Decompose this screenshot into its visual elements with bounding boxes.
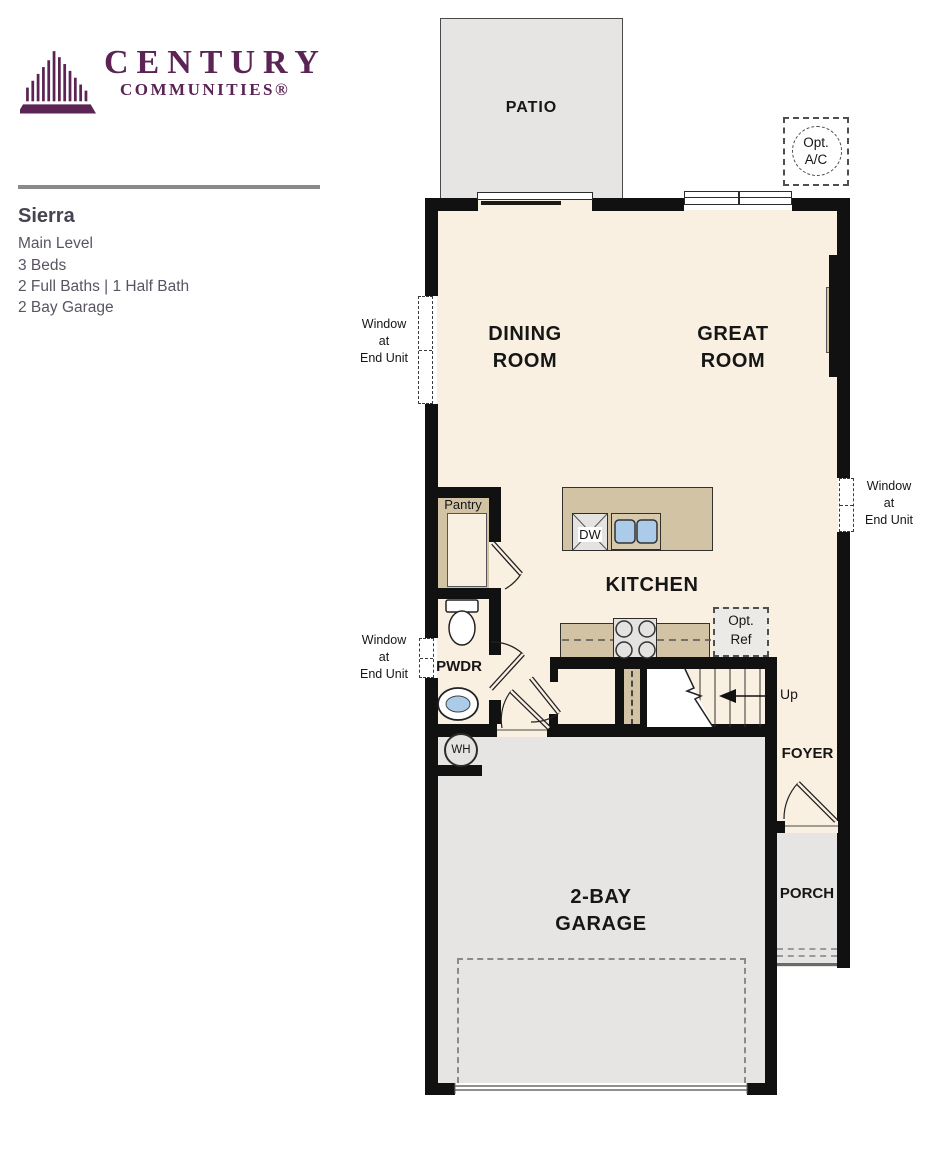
floorplan-page: { "brand": { "name_line1": "CENTURY", "n… xyxy=(0,0,943,1150)
wall-segment xyxy=(592,198,684,211)
dishwasher-label: DW xyxy=(572,527,608,542)
great-room-window xyxy=(684,191,792,205)
opt-ac-line1: Opt. xyxy=(783,134,849,151)
century-communities-logo-icon xyxy=(20,44,96,116)
century-communities-logo: CENTURY COMMUNITIES® xyxy=(20,44,340,124)
window-note-line1: Window xyxy=(350,632,418,649)
cooktop-box xyxy=(613,618,657,660)
window-note-line2: at xyxy=(350,649,418,666)
end-unit-window-dining xyxy=(418,296,433,404)
entry-wall xyxy=(765,821,785,833)
powder-door-opening xyxy=(489,655,501,700)
wall-segment xyxy=(837,377,850,478)
opt-ac-line2: A/C xyxy=(783,151,849,168)
wall-segment xyxy=(425,678,438,1095)
pantry-label: Pantry xyxy=(437,497,489,512)
garage-door-dashed-outline xyxy=(457,958,746,1083)
kitchen-sink-counter xyxy=(611,513,661,550)
great-line2: ROOM xyxy=(663,348,803,375)
wall-segment xyxy=(425,404,438,638)
closet-wall xyxy=(640,669,647,727)
kitchen-label: KITCHEN xyxy=(582,572,722,599)
entry-wall xyxy=(838,821,850,833)
dw-text: DW xyxy=(578,527,602,542)
plan-baths: 2 Full Baths | 1 Half Bath xyxy=(18,278,189,296)
porch-step-line xyxy=(777,955,837,957)
window-note-dining: Window at End Unit xyxy=(350,316,418,367)
closet-wall xyxy=(615,669,624,727)
fireplace-chase-wall xyxy=(829,255,850,377)
great-room-label: GREAT ROOM xyxy=(663,321,803,375)
water-heater-label: WH xyxy=(444,733,478,767)
opt-ref-line1: Opt. xyxy=(713,611,769,630)
dining-room-label: DINING ROOM xyxy=(455,321,595,375)
window-note-line3: End Unit xyxy=(350,666,418,683)
pantry-wall xyxy=(425,588,501,599)
porch-step-edge xyxy=(777,963,837,966)
garage-side-wall xyxy=(765,669,777,1083)
brand-subname: COMMUNITIES® xyxy=(120,80,327,100)
sliding-door-panel-inner xyxy=(481,201,561,205)
garage-front-wall xyxy=(747,1083,777,1095)
porch-label: PORCH xyxy=(777,885,837,902)
wall-jamb xyxy=(549,714,558,727)
pantry-wall xyxy=(489,487,501,542)
pantry-floor xyxy=(447,513,487,587)
powder-wall xyxy=(489,700,501,726)
powder-label: PWDR xyxy=(430,658,488,675)
powder-wall xyxy=(489,599,501,655)
wall-jamb xyxy=(550,657,558,682)
window-note-line2: at xyxy=(350,333,418,350)
opt-ref-line2: Ref xyxy=(713,630,769,649)
optional-ac-label: Opt. A/C xyxy=(783,134,849,168)
dining-line2: ROOM xyxy=(455,348,595,375)
garage-label: 2-BAY GARAGE xyxy=(511,884,691,938)
window-note-great: Window at End Unit xyxy=(855,478,923,529)
window-note-line2: at xyxy=(855,495,923,512)
great-line1: GREAT xyxy=(663,321,803,348)
front-door-opening xyxy=(785,821,838,833)
dining-line1: DINING xyxy=(455,321,595,348)
foyer-area xyxy=(777,729,838,822)
window-note-line1: Window xyxy=(855,478,923,495)
garage-entry-opening xyxy=(497,724,547,737)
garage-line2: GARAGE xyxy=(511,911,691,938)
kitchen-wall xyxy=(550,657,777,669)
up-label: Up xyxy=(780,686,810,702)
plan-level: Main Level xyxy=(18,235,93,253)
window-note-powder: Window at End Unit xyxy=(350,632,418,683)
patio-label: PATIO xyxy=(440,99,623,117)
window-note-line3: End Unit xyxy=(855,512,923,529)
window-note-line3: End Unit xyxy=(350,350,418,367)
window-note-line1: Window xyxy=(350,316,418,333)
garage-front-wall xyxy=(425,1083,455,1095)
closet-dashed-line xyxy=(631,671,633,725)
wall-segment xyxy=(425,198,438,296)
brand-name: CENTURY xyxy=(104,44,327,82)
wall-segment xyxy=(837,532,850,968)
pantry-door-opening xyxy=(489,543,501,588)
divider xyxy=(18,185,320,189)
plan-name: Sierra xyxy=(18,205,75,228)
wall-segment xyxy=(837,198,850,255)
garage-wall xyxy=(547,724,777,737)
end-unit-window-great xyxy=(839,478,854,532)
foyer-label: FOYER xyxy=(777,745,838,762)
garage-door xyxy=(455,1083,747,1095)
optional-ref-label: Opt. Ref xyxy=(713,611,769,649)
sliding-door-panel xyxy=(477,192,593,200)
garage-line1: 2-BAY xyxy=(511,884,691,911)
plan-beds: 3 Beds xyxy=(18,257,66,275)
plan-garage: 2 Bay Garage xyxy=(18,299,114,317)
porch-step-line xyxy=(777,948,837,950)
